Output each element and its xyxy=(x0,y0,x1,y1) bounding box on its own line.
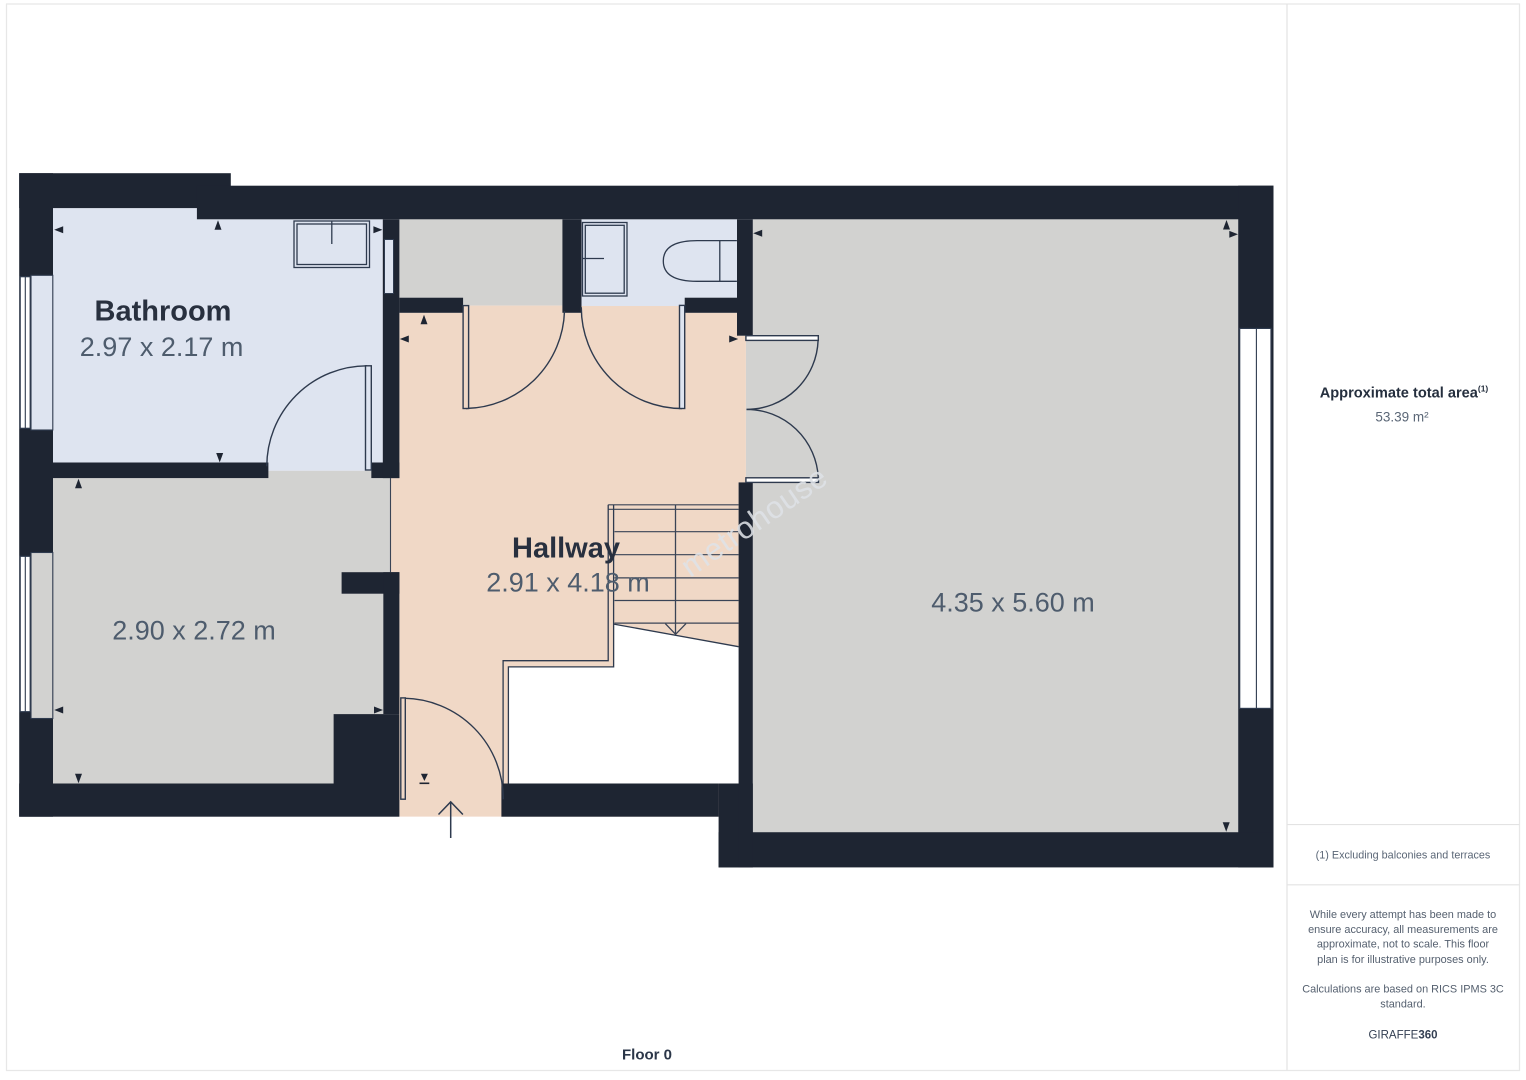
svg-text:2.90 x 2.72 m: 2.90 x 2.72 m xyxy=(112,615,276,645)
svg-text:(1) Excluding balconies and te: (1) Excluding balconies and terraces xyxy=(1316,849,1491,861)
svg-text:Calculations are based on RICS: Calculations are based on RICS IPMS 3C xyxy=(1302,984,1504,996)
svg-text:GIRAFFE360: GIRAFFE360 xyxy=(1368,1029,1437,1041)
svg-text:ensure accuracy, all measureme: ensure accuracy, all measurements are xyxy=(1308,924,1498,936)
svg-text:2.91 x 4.18 m: 2.91 x 4.18 m xyxy=(486,568,650,598)
svg-text:While every attempt has been m: While every attempt has been made to xyxy=(1310,909,1496,921)
svg-text:Approximate total area(1): Approximate total area(1) xyxy=(1320,384,1489,402)
svg-text:53.39 m²: 53.39 m² xyxy=(1375,410,1429,425)
svg-text:Bathroom: Bathroom xyxy=(95,296,232,328)
svg-text:plan is for illustrative purpo: plan is for illustrative purposes only. xyxy=(1317,954,1489,966)
svg-text:standard.: standard. xyxy=(1380,998,1425,1010)
svg-text:Hallway: Hallway xyxy=(512,533,620,565)
svg-text:Floor 0: Floor 0 xyxy=(622,1047,672,1064)
svg-text:2.97 x 2.17 m: 2.97 x 2.17 m xyxy=(80,332,244,362)
svg-text:4.35 x 5.60 m: 4.35 x 5.60 m xyxy=(931,588,1095,618)
svg-text:approximate, not to scale. Thi: approximate, not to scale. This floor xyxy=(1317,939,1490,951)
